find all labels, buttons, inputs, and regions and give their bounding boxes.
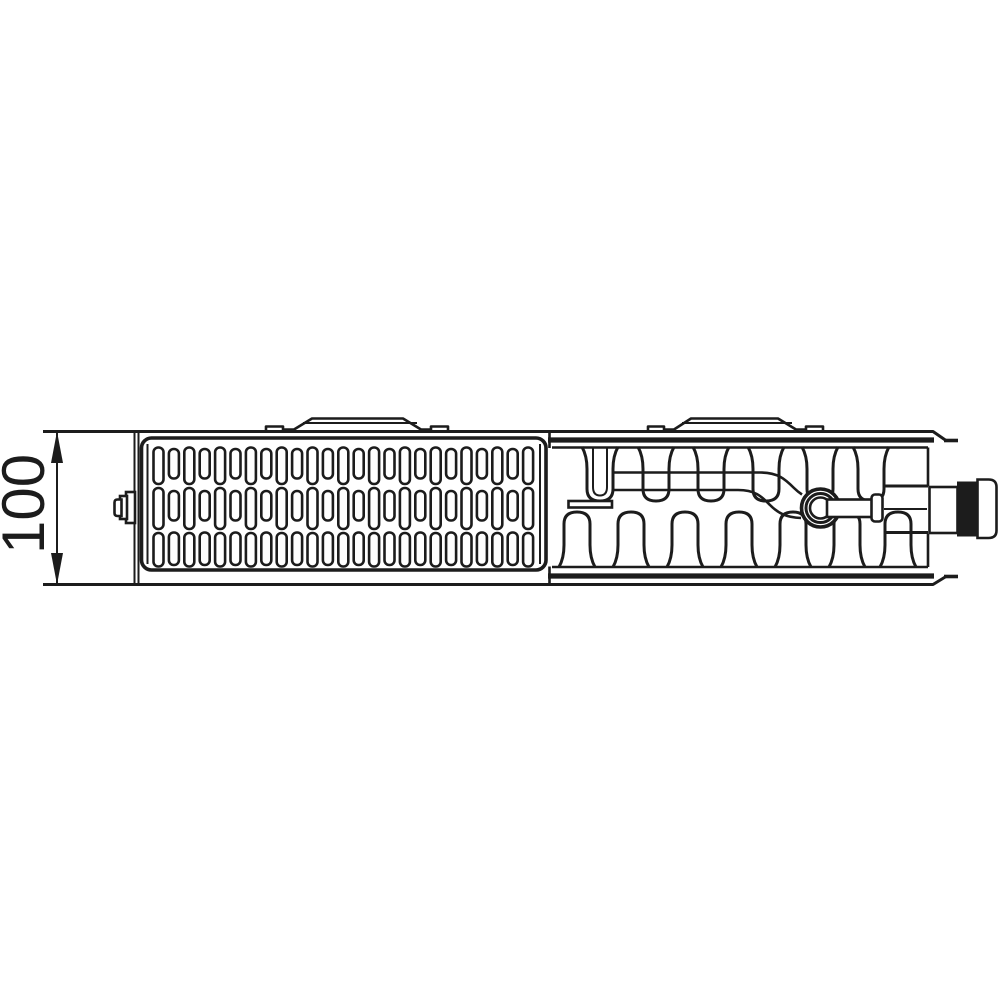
- grille-slot: [338, 488, 348, 529]
- water-channel: [612, 473, 802, 519]
- grille-slot: [323, 491, 333, 521]
- grille-slot: [492, 533, 502, 567]
- grille-slot: [308, 488, 318, 529]
- grille-slot: [277, 448, 287, 485]
- grille-slot: [231, 449, 241, 479]
- plug-cap: [115, 500, 122, 517]
- mounting-brackets: [266, 419, 823, 432]
- grille-slot: [338, 448, 348, 485]
- grille-frame-inner-walls: [148, 444, 541, 564]
- grille-slot: [308, 448, 318, 485]
- grille-slot: [308, 533, 318, 567]
- grille-slot: [184, 488, 194, 529]
- grille-slot: [462, 448, 472, 485]
- technical-drawing: 100: [0, 0, 1000, 1000]
- fin-top: [693, 447, 729, 501]
- grille-slot: [369, 488, 379, 529]
- grille-slot: [200, 449, 210, 479]
- valve-pipe: [827, 500, 873, 518]
- grille-slot: [369, 533, 379, 567]
- grille-slot: [154, 488, 164, 529]
- grille-slot: [231, 533, 241, 566]
- grille-slot: [169, 491, 179, 521]
- grille-slot: [477, 533, 487, 566]
- grille-slot: [431, 533, 441, 567]
- connection-stub: [930, 487, 958, 533]
- grille-slot: [415, 449, 425, 479]
- grille-slot: [431, 488, 441, 529]
- grille-slot: [184, 448, 194, 485]
- grille-slot: [169, 449, 179, 479]
- grille-slot: [508, 533, 518, 566]
- fin-bottom: [880, 512, 916, 567]
- grille-slot: [215, 448, 225, 485]
- bracket-left: [266, 419, 448, 432]
- grille-slot: [354, 491, 364, 521]
- fin-bottom: [667, 512, 703, 567]
- radiator-drawing-svg: 100: [0, 0, 1000, 1000]
- grille-slot: [462, 533, 472, 567]
- grille-slot: [246, 448, 256, 485]
- fin-top: [638, 447, 674, 501]
- grille-slot: [462, 488, 472, 529]
- grille-slot: [154, 533, 164, 567]
- grille-slot: [523, 533, 533, 567]
- grille-slot: [261, 491, 271, 521]
- grille-slot: [369, 448, 379, 485]
- special-fin-bar: [569, 501, 613, 508]
- special-fin-inner: [593, 447, 607, 496]
- bracket-right: [648, 419, 823, 432]
- grille-slot: [400, 488, 410, 529]
- left-plug-fitting: [115, 492, 136, 523]
- grille-slot: [385, 449, 395, 479]
- grille-slot: [385, 533, 395, 566]
- grille-slot: [415, 533, 425, 566]
- grille-slot: [446, 491, 456, 521]
- grille-slot: [277, 488, 287, 529]
- grille-slot: [385, 491, 395, 521]
- grille-slot: [261, 449, 271, 479]
- grille-slot: [477, 449, 487, 479]
- connection-cap: [978, 480, 997, 539]
- fin-bottom: [613, 512, 649, 567]
- dimension-value: 100: [0, 454, 57, 554]
- grille-slot: [415, 491, 425, 521]
- fin-bottom: [721, 512, 757, 567]
- grille-slots: [154, 448, 534, 567]
- grille-slot: [231, 491, 241, 521]
- grille-slot: [323, 449, 333, 479]
- grille-slot: [508, 449, 518, 479]
- grille-frame: [142, 438, 547, 570]
- grille-slot: [508, 491, 518, 521]
- grille-slot: [477, 491, 487, 521]
- connection-nut-black: [957, 482, 978, 537]
- grille-slot: [354, 533, 364, 566]
- grille-slot: [323, 533, 333, 566]
- grille-slot: [523, 448, 533, 485]
- grille-slot: [338, 533, 348, 567]
- grille-slot: [354, 449, 364, 479]
- grille-slot: [292, 491, 302, 521]
- grille-slot: [200, 491, 210, 521]
- cutaway-section: [548, 432, 934, 585]
- right-connection: [930, 480, 997, 539]
- dimension-arrow-down: [51, 553, 63, 585]
- fin-top-special-outer: [582, 447, 618, 501]
- grille-slot: [184, 533, 194, 567]
- valve-insert: [802, 489, 928, 527]
- grille-slot: [261, 533, 271, 566]
- grille-slot: [431, 448, 441, 485]
- grille-slot: [523, 488, 533, 529]
- fin-top: [853, 447, 889, 501]
- grille-slot: [246, 533, 256, 567]
- fin-bottom: [559, 512, 595, 567]
- grille-slot: [446, 449, 456, 479]
- grille-slot: [200, 533, 210, 566]
- grille-slot: [400, 533, 410, 567]
- grille-slot: [246, 488, 256, 529]
- top-grille: [142, 438, 547, 570]
- valve-pipe-flare: [872, 495, 883, 522]
- grille-slot: [169, 533, 179, 566]
- grille-slot: [215, 488, 225, 529]
- dimension-annotation: 100: [0, 432, 63, 585]
- grille-slot: [292, 533, 302, 566]
- grille-slot: [400, 448, 410, 485]
- grille-slot: [292, 449, 302, 479]
- grille-slot: [446, 533, 456, 566]
- grille-slot: [215, 533, 225, 567]
- grille-slot: [492, 448, 502, 485]
- grille-slot: [154, 448, 164, 485]
- grille-slot: [277, 533, 287, 567]
- grille-slot: [492, 488, 502, 529]
